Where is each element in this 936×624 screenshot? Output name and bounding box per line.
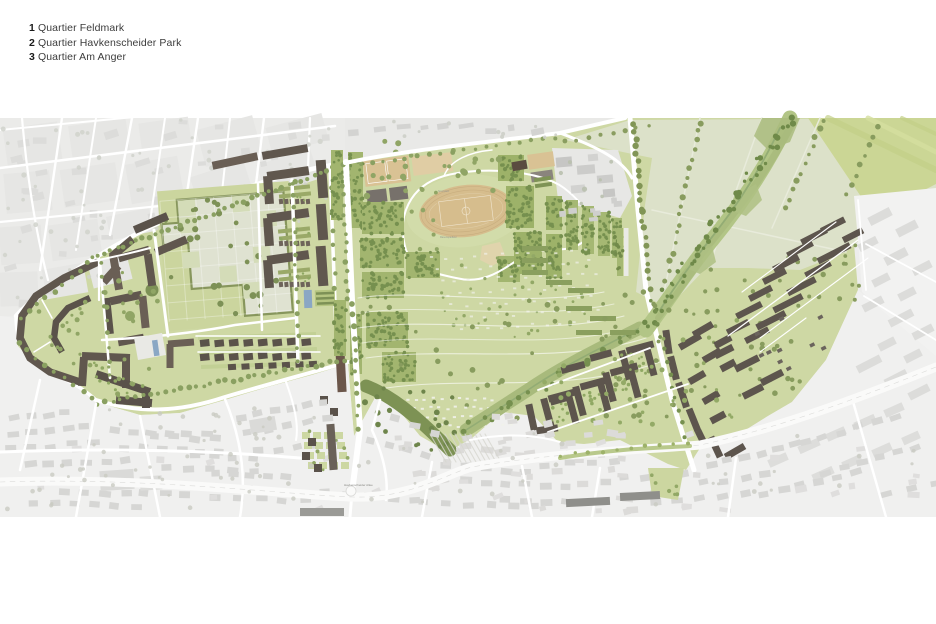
svg-text:Sportplatz: Sportplatz xyxy=(438,190,450,193)
svg-text:Rasenspielfeld: Rasenspielfeld xyxy=(440,236,457,239)
svg-text:Havkenscheider Allee: Havkenscheider Allee xyxy=(344,483,373,487)
